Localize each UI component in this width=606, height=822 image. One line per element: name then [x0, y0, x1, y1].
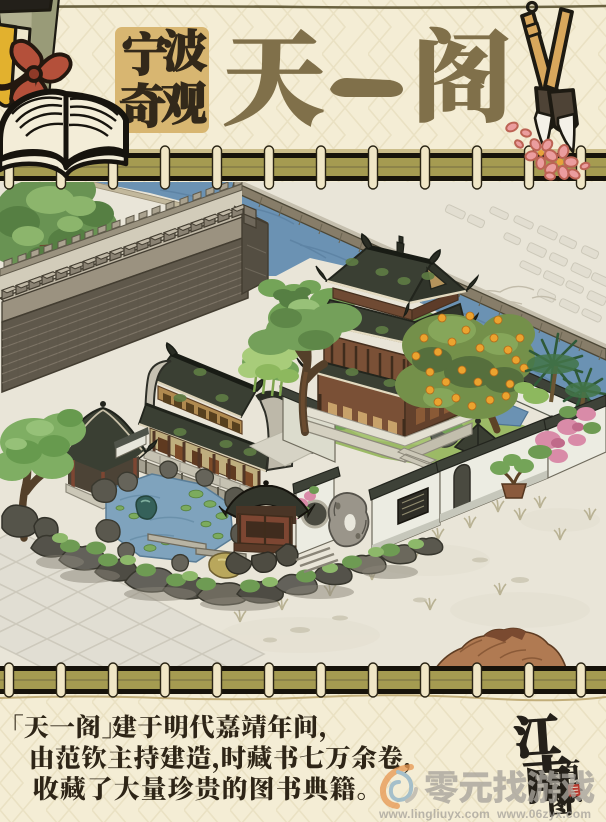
svg-text:www.lingliuyx.com: www.lingliuyx.com [378, 807, 490, 821]
svg-text:www.06zyx.com: www.06zyx.com [496, 807, 591, 821]
